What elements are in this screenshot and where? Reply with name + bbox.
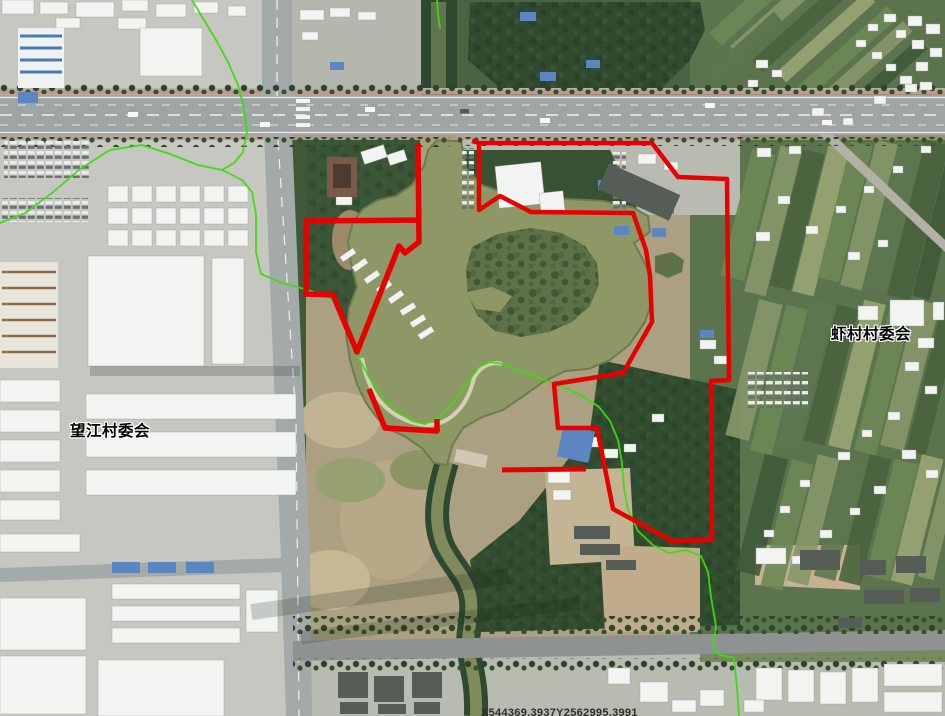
red-boundary-detached-segment <box>502 469 586 470</box>
village-label-wangjiang: 望江村委会 <box>70 419 150 441</box>
village-label-xiacun: 虾村村委会 <box>831 322 911 344</box>
coordinate-watermark: X544369.3937Y2562995.3991 <box>481 707 638 716</box>
satellite-imagery <box>0 0 945 716</box>
satellite-map-view[interactable]: 望江村委会 虾村村委会 X544369.3937Y2562995.3991 <box>0 0 945 716</box>
